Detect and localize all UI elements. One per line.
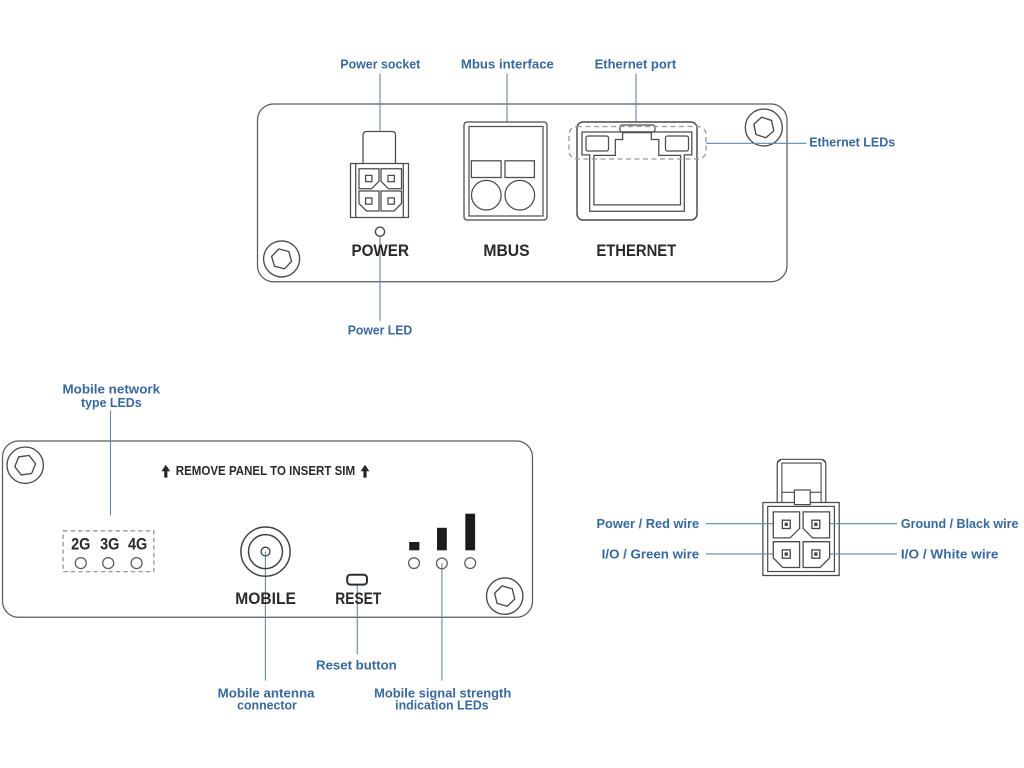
svg-text:type LEDs: type LEDs (81, 395, 142, 410)
svg-text:connector: connector (237, 698, 297, 713)
svg-text:2G: 2G (71, 535, 90, 554)
svg-text:Ethernet LEDs: Ethernet LEDs (809, 135, 895, 150)
svg-text:Reset button: Reset button (316, 657, 397, 672)
svg-text:MOBILE: MOBILE (235, 589, 296, 608)
svg-text:MBUS: MBUS (483, 241, 529, 260)
svg-text:Power / Red wire: Power / Red wire (597, 516, 700, 531)
svg-text:Power socket: Power socket (340, 57, 421, 72)
svg-text:Ground / Black wire: Ground / Black wire (901, 516, 1019, 531)
svg-text:Power LED: Power LED (348, 322, 413, 337)
svg-text:Mbus interface: Mbus interface (461, 57, 554, 72)
svg-text:REMOVE PANEL TO INSERT SIM: REMOVE PANEL TO INSERT SIM (176, 463, 355, 478)
svg-text:I/O / White wire: I/O / White wire (901, 546, 999, 561)
svg-text:RESET: RESET (335, 589, 382, 608)
svg-text:I/O / Green wire: I/O / Green wire (602, 546, 700, 561)
svg-text:4G: 4G (128, 535, 147, 554)
svg-text:Ethernet port: Ethernet port (595, 57, 677, 72)
svg-text:ETHERNET: ETHERNET (596, 241, 676, 260)
svg-text:POWER: POWER (351, 241, 409, 260)
svg-text:3G: 3G (100, 535, 119, 554)
svg-text:indication LEDs: indication LEDs (395, 698, 489, 713)
